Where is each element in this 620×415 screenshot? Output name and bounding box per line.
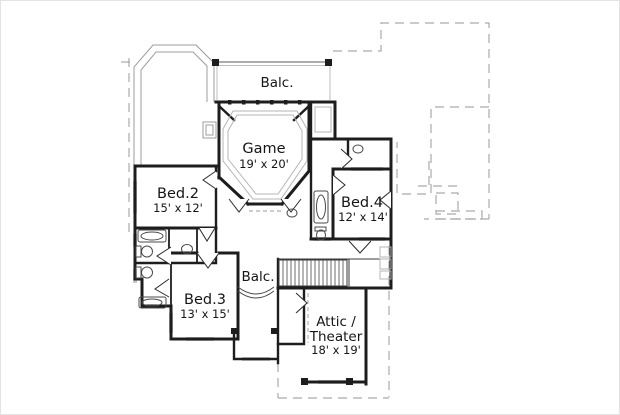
room-labels: Balc. Game 19' x 20' Bed.2 15' x 12' Bed… [153,75,388,357]
door-swing [229,199,249,212]
door-swing [333,175,345,195]
sink-icon [353,145,363,153]
door-swing [349,241,371,253]
room-label-balcony-mid: Balc. [242,269,275,285]
floor-plan: Balc. Game 19' x 20' Bed.2 15' x 12' Bed… [0,0,620,415]
door-swing [296,293,307,313]
room-label-game: Game [242,141,285,157]
room-label-balcony-top: Balc. [261,75,294,91]
door-swing [203,171,216,189]
room-label-attic-line1: Attic / [316,314,356,330]
bathtub-icon [314,191,328,223]
door-swing [155,279,169,297]
room-label-bed4: Bed.4 [341,195,383,211]
room-dims-game: 19' x 20' [239,157,289,171]
room-dims-bed3: 13' x 15' [180,307,230,321]
closet-shelf [315,107,331,132]
staircase [278,247,391,288]
toilet-icon [136,267,153,278]
floor-plan-canvas: Balc. Game 19' x 20' Bed.2 15' x 12' Bed… [1,1,620,415]
door-swing [341,149,352,169]
curved-balcony-rail [238,287,274,298]
door-swing [199,228,215,241]
turret-outline [134,45,216,166]
room-dims-bed2: 15' x 12' [153,201,203,215]
room-dims-bed4: 12' x 14' [338,210,388,224]
room-label-bed2: Bed.2 [157,186,199,202]
room-label-bed3: Bed.3 [184,292,226,308]
door-swing [281,199,301,212]
toilet-icon [136,246,153,257]
room-dims-attic: 18' x 19' [311,343,361,357]
bathtub-icon [138,230,166,242]
